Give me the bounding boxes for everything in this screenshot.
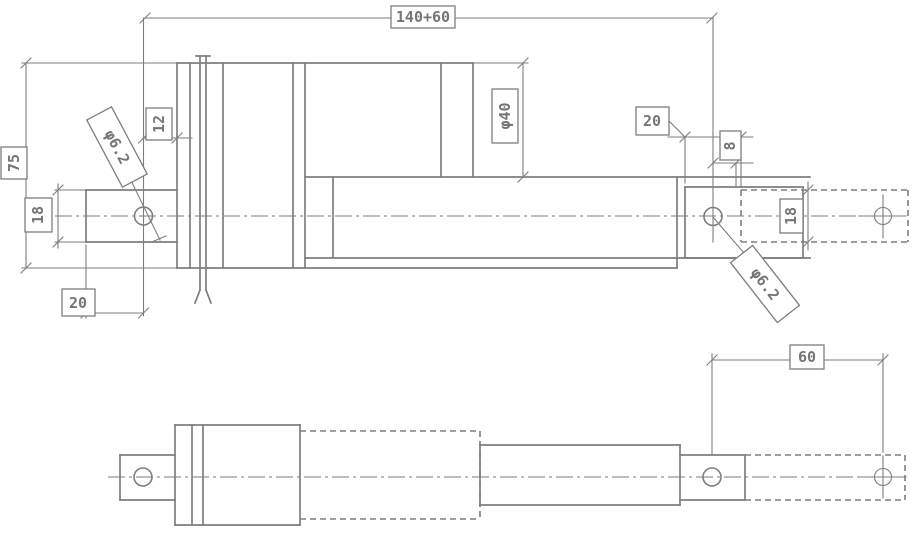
dim-rod-end-offset-label: 20	[643, 112, 661, 130]
top-view: 140+60 75 12 φ6.2	[1, 6, 908, 323]
actuator-drawing-svg: 140+60 75 12 φ6.2	[0, 0, 912, 537]
bottom-dashed-section	[300, 431, 480, 519]
drawing-canvas: 140+60 75 12 φ6.2	[0, 0, 912, 537]
bottom-tube	[480, 445, 680, 505]
dim-pin-edge-dist-label: 8	[721, 141, 739, 150]
dim-overall-length: 140+60	[140, 6, 717, 316]
dim-tab-hole-offset: 20	[62, 245, 149, 318]
extended-hole-crosshair	[859, 195, 906, 238]
bottom-view: 60	[108, 345, 906, 525]
cylinder-outline	[441, 63, 473, 177]
dim-rod-end-tab-height: 18	[780, 182, 813, 250]
dim-tube-dia: φ40	[473, 58, 528, 182]
dim-tube-dia-label: φ40	[496, 102, 514, 129]
dim-stroke-label: 60	[798, 348, 816, 366]
tube-outline	[305, 177, 810, 268]
housing-outline	[177, 63, 677, 268]
dim-pin-to-face-label: 12	[150, 115, 168, 133]
split-pin	[195, 56, 211, 303]
dim-body-height-label: 75	[5, 154, 23, 172]
dim-overall-length-label: 140+60	[396, 8, 450, 26]
bottom-extended-crosshair	[859, 456, 906, 498]
dim-left-tab-height-label: 18	[29, 206, 47, 224]
dim-body-height: 75	[1, 58, 177, 273]
dim-pin-to-face: 12	[139, 108, 193, 143]
dim-stroke: 60	[707, 345, 888, 455]
bottom-extended-phantom	[745, 455, 906, 500]
dim-rod-end-tab-height-label: 18	[782, 207, 800, 225]
bottom-housing	[175, 425, 300, 525]
dim-tab-hole-offset-label: 20	[69, 294, 87, 312]
